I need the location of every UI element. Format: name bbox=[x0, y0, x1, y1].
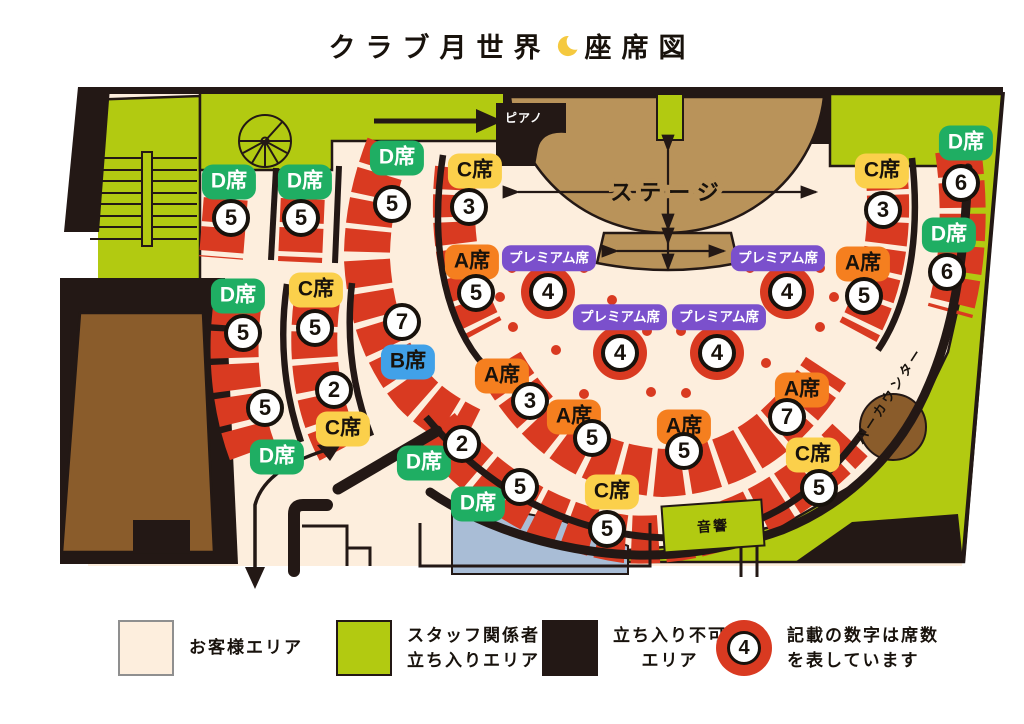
seat-badge-d: D席 bbox=[397, 446, 451, 481]
legend-item-staff-area: スタッフ関係者立ち入りエリア bbox=[336, 620, 540, 676]
seat-count-example-icon: 4 bbox=[716, 620, 772, 676]
seat-count: 4 bbox=[768, 273, 806, 311]
seat-badge-c: C席 bbox=[786, 438, 840, 473]
seat-badge-p: プレミアム席 bbox=[731, 245, 825, 271]
seat-badge-d: D席 bbox=[202, 165, 256, 200]
title-right: 座席図 bbox=[585, 26, 696, 65]
seat-badge-c: C席 bbox=[585, 475, 639, 510]
seat-count: 5 bbox=[246, 389, 284, 427]
crescent-moon-icon bbox=[552, 30, 583, 61]
legend-label: スタッフ関係者立ち入りエリア bbox=[407, 623, 540, 674]
seat-count: 5 bbox=[501, 468, 539, 506]
seat-count: 6 bbox=[928, 253, 966, 291]
seat-layer: D席5D席5D席5D席5C席5C席2D席5B席7C席3A席5プレミアム席4プレミ… bbox=[0, 0, 1024, 600]
seat-count: 5 bbox=[573, 419, 611, 457]
seat-count: 7 bbox=[383, 303, 421, 341]
legend-item-no-entry-area: 立ち入り不可エリア bbox=[542, 620, 727, 676]
seat-badge-d: D席 bbox=[939, 126, 993, 161]
seat-count: 4 bbox=[529, 273, 567, 311]
seat-count: 4 bbox=[601, 334, 639, 372]
legend-item-seat-count-note: 4 記載の数字は席数を表しています bbox=[716, 620, 939, 676]
legend-label: 記載の数字は席数を表しています bbox=[787, 623, 939, 674]
seat-count: 3 bbox=[864, 191, 902, 229]
seat-badge-c: C席 bbox=[316, 412, 370, 447]
seat-badge-p: プレミアム席 bbox=[502, 245, 596, 271]
seat-count: 5 bbox=[845, 277, 883, 315]
seat-count: 2 bbox=[315, 371, 353, 409]
seat-badge-d: D席 bbox=[451, 487, 505, 522]
seat-count: 6 bbox=[942, 164, 980, 202]
seat-badge-c: C席 bbox=[289, 273, 343, 308]
seat-badge-d: D席 bbox=[211, 279, 265, 314]
seat-count: 5 bbox=[800, 469, 838, 507]
legend-item-customer-area: お客様エリア bbox=[118, 620, 303, 676]
seat-count: 5 bbox=[224, 314, 262, 352]
seat-badge-d: D席 bbox=[250, 440, 304, 475]
legend-label: お客様エリア bbox=[189, 635, 303, 661]
no-entry-area-swatch bbox=[542, 620, 598, 676]
customer-area-swatch bbox=[118, 620, 174, 676]
seat-badge-b: B席 bbox=[381, 345, 435, 380]
seat-count: 5 bbox=[665, 432, 703, 470]
seat-count: 3 bbox=[450, 188, 488, 226]
seat-badge-c: C席 bbox=[448, 154, 502, 189]
staff-area-swatch bbox=[336, 620, 392, 676]
title-left: クラブ月世界 bbox=[329, 26, 551, 65]
seat-count: 5 bbox=[282, 199, 320, 237]
seat-count: 5 bbox=[457, 274, 495, 312]
seat-count: 2 bbox=[443, 425, 481, 463]
seat-badge-p: プレミアム席 bbox=[672, 304, 766, 330]
seat-count: 5 bbox=[296, 309, 334, 347]
seat-badge-p: プレミアム席 bbox=[573, 304, 667, 330]
seat-count: 3 bbox=[511, 382, 549, 420]
seat-count: 5 bbox=[212, 199, 250, 237]
seat-count: 7 bbox=[768, 398, 806, 436]
seat-badge-d: D席 bbox=[370, 141, 424, 176]
seat-count: 4 bbox=[698, 334, 736, 372]
page-title: クラブ月世界 座席図 bbox=[0, 26, 1024, 65]
seat-badge-c: C席 bbox=[855, 154, 909, 189]
seat-count: 5 bbox=[373, 185, 411, 223]
seat-badge-d: D席 bbox=[922, 218, 976, 253]
legend-label: 立ち入り不可エリア bbox=[613, 623, 727, 674]
seat-count: 5 bbox=[588, 510, 626, 548]
seat-badge-d: D席 bbox=[278, 165, 332, 200]
